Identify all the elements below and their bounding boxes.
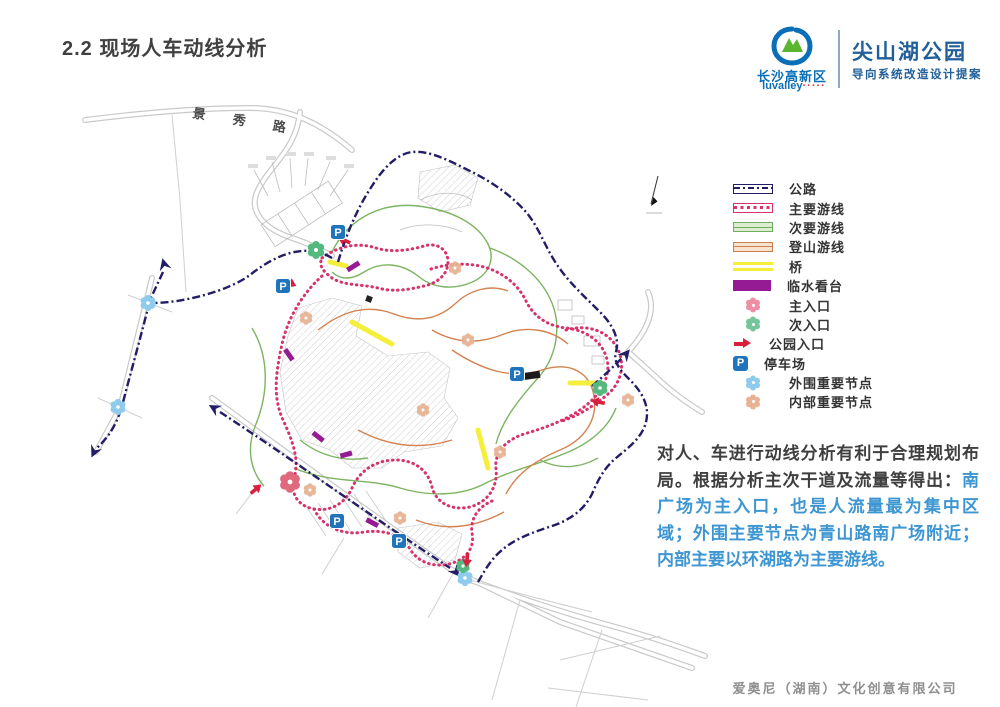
legend-label: 次入口 <box>789 315 831 334</box>
legend-label: 公路 <box>789 179 817 198</box>
secondary-route-icon <box>733 222 773 232</box>
brand-latin: luvalley····· <box>752 80 836 92</box>
legend-item-park-entrance: 公园入口 <box>733 334 923 353</box>
legend-item-bridge: 桥 <box>733 257 923 276</box>
legend-item-parking: P 停车场 <box>733 354 923 373</box>
secondary-entrance-icon <box>733 316 773 332</box>
legend: 公路 主要游线 次要游线 登山游线 桥 临水看台 主入口 次入口 公园入口 P … <box>733 179 923 412</box>
svg-text:P: P <box>333 516 340 528</box>
brand-subtitle: 导向系统改造设计提案 <box>852 66 982 82</box>
legend-item-road: 公路 <box>733 179 923 198</box>
main-entrance-icon <box>280 471 300 493</box>
legend-label: 外围重要节点 <box>789 373 873 392</box>
legend-label: 主要游线 <box>789 199 845 218</box>
legend-item-secondary-entrance: 次入口 <box>733 315 923 334</box>
legend-label: 停车场 <box>764 354 806 373</box>
legend-item-outer-node: 外围重要节点 <box>733 373 923 392</box>
parking-icon: P <box>733 356 748 371</box>
legend-label: 桥 <box>789 257 803 276</box>
climb-route-icon <box>733 242 773 252</box>
legend-label: 主入口 <box>789 296 831 315</box>
outer-node-icon <box>733 375 773 391</box>
legend-item-platform: 临水看台 <box>733 276 923 295</box>
legend-label: 公园入口 <box>769 334 825 353</box>
main-entrance-icon <box>733 297 773 313</box>
analysis-lead: 对人、车进行动线分析有利于合理规划布局。根据分析主次干道及流量等得出： <box>657 444 979 490</box>
road-icon <box>733 184 773 194</box>
park-entrance-icon <box>733 338 753 349</box>
analysis-paragraph: 对人、车进行动线分析有利于合理规划布局。根据分析主次干道及流量等得出：南广场为主… <box>657 441 979 574</box>
legend-item-main-route: 主要游线 <box>733 198 923 217</box>
page-title: 2.2 现场人车动线分析 <box>62 32 267 61</box>
svg-text:P: P <box>395 536 402 548</box>
legend-item-secondary-route: 次要游线 <box>733 218 923 237</box>
platform-icon <box>733 280 771 291</box>
brand-block: 长沙高新区 luvalley····· 尖山湖公园 导向系统改造设计提案 <box>748 24 978 94</box>
brand-divider <box>838 30 840 88</box>
svg-text:P: P <box>334 227 341 239</box>
legend-label: 临水看台 <box>787 276 843 295</box>
legend-label: 登山游线 <box>789 237 845 256</box>
brand-logo-icon <box>770 26 814 66</box>
bridge-icon <box>733 262 773 271</box>
main-route-icon <box>733 203 773 213</box>
park-name: 尖山湖公园 <box>852 36 967 66</box>
svg-text:P: P <box>513 369 520 381</box>
legend-item-main-entrance: 主入口 <box>733 295 923 314</box>
legend-label: 次要游线 <box>789 218 845 237</box>
legend-item-climb-route: 登山游线 <box>733 237 923 256</box>
inner-node-icon <box>733 394 773 410</box>
north-arrow-icon <box>646 176 662 213</box>
legend-item-inner-node: 内部重要节点 <box>733 392 923 411</box>
slide: { "page": { "title": "2.2 现场人车动线分析", "fo… <box>0 0 1000 707</box>
svg-text:P: P <box>279 281 286 293</box>
company-footer: 爱奥尼（湖南）文化创意有限公司 <box>690 678 1000 697</box>
legend-label: 内部重要节点 <box>789 392 873 411</box>
